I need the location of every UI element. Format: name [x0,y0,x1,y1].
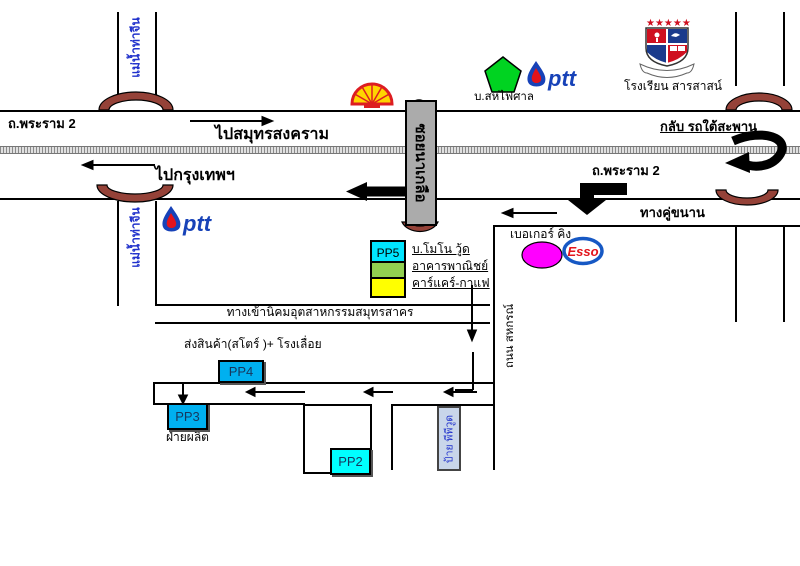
uturn-label: กลับ รถใต้สะพาน [660,120,757,134]
thick-arrow-left [346,182,407,201]
pp2-box: PP2 [330,448,371,475]
rama2-label-left: ถ.พระราม 2 [8,117,76,131]
river-label-text: แม่น้ำท่าจีน [127,207,146,267]
river-label: แม่น้ำท่าจีน [101,40,171,54]
pentagon-label: บ.สหไฟศาล [474,91,534,104]
bridge-arc [726,93,792,110]
to-bangkok-label: ไปกรุงเทพฯ [155,167,235,185]
industrial-entrance-label: ทางเข้านิคมอุตสาหกรรมสมุทรสาคร [160,306,480,319]
ppwood-sign-box: ป้าย พีพีวูด [437,406,461,471]
school-crest: ★★★★★ [640,18,694,78]
legend-swatch-yellow [370,277,406,298]
legend-item-label: บ.โมโน วู้ด [412,243,470,256]
esso-logo: Esso [564,239,602,264]
side-road-label-text: ถนน สหกรณ์ [501,304,519,368]
pp4-box: PP4 [218,360,264,383]
arrow-lane-left-1 [246,388,305,397]
side-road-label: ถนน สหกรณ์ [470,328,550,344]
bakery-ellipse [522,242,562,268]
production-label: ฝ่ายผลิต [166,431,209,444]
to-samut-songkhram-label: ไปสมุทรสงคราม [215,126,329,144]
bridge-arc [99,92,173,110]
pentagon-landmark [485,57,521,92]
soi-sign: ซอยนาเกลือ [405,100,437,226]
pp3-box: PP3 [167,403,208,430]
ptt-text: ptt [182,211,213,236]
pp4-label: PP4 [229,364,254,379]
river-label-text: แม่น้ำท่าจีน [127,17,146,77]
ppwood-sign-text: ป้าย พีพีวูด [441,414,458,462]
arrow-to-bangkok [82,161,155,170]
pp5-label: PP5 [377,246,400,260]
bridge-arc [97,185,173,202]
ptt-logo: ptt [527,61,577,91]
bridge-arc [716,190,778,205]
legend-item-label: อาคารพาณิชย์ [412,260,488,273]
thick-arrow-turn-down [568,183,627,215]
legend-item-label: คาร์แคร์-กาแฟ [412,277,490,290]
soi-sign-text: ซอยนาเกลือ [409,123,433,202]
bakery-label: เบอเกอร์ คิง [510,228,571,241]
ptt-text: ptt [547,66,578,91]
store-sawmill-label: ส่งสินค้า(สโตร์ )+ โรงเลื่อย [184,338,322,351]
arrow-down-pp3 [179,384,188,404]
arrow-lane-left-2 [364,388,393,397]
frontage-road-label: ทางคู่ขนาน [640,206,705,220]
uturn-arrow [725,135,782,173]
esso-text: Esso [567,244,598,259]
river-label: แม่น้ำท่าจีน [101,230,171,244]
pp2-label: PP2 [338,454,363,469]
pp3-label: PP3 [175,409,200,424]
shell-logo [352,84,392,108]
school-label: โรงเรียน สารสาสน์ [618,80,728,93]
route-map: ptt ptt Esso ★★★★★ [0,0,800,566]
arrow-lane-left-3 [444,388,477,397]
arrow-frontage-left [502,209,557,218]
rama2-label-right: ถ.พระราม 2 [592,164,660,178]
arrow-to-samut-songkhram [190,117,273,126]
